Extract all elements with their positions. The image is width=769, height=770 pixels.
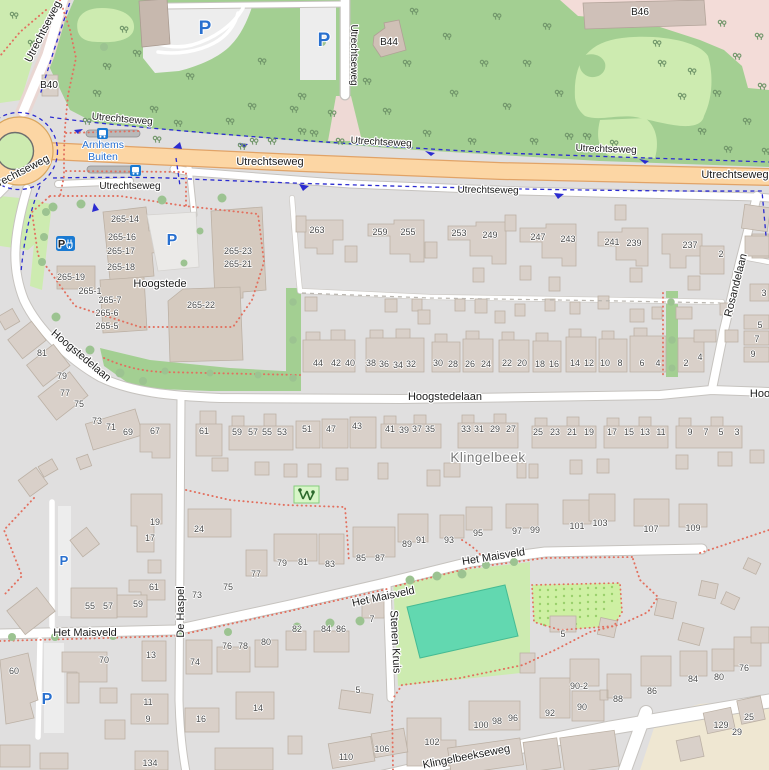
svg-text:253: 253 (451, 228, 466, 238)
svg-text:249: 249 (482, 230, 497, 240)
svg-text:103: 103 (592, 518, 607, 528)
svg-text:99: 99 (530, 525, 540, 535)
svg-text:Buiten: Buiten (88, 151, 118, 163)
svg-text:15: 15 (624, 427, 634, 437)
svg-text:Arnhems: Arnhems (82, 139, 124, 151)
svg-text:77: 77 (60, 388, 70, 398)
svg-text:95: 95 (473, 528, 483, 538)
svg-text:265-22: 265-22 (187, 300, 215, 310)
svg-text:13: 13 (640, 427, 650, 437)
svg-text:265-6: 265-6 (95, 308, 118, 318)
svg-text:7: 7 (754, 334, 759, 344)
svg-text:26: 26 (465, 359, 475, 369)
svg-text:2: 2 (683, 358, 688, 368)
svg-text:38: 38 (366, 358, 376, 368)
svg-text:102: 102 (424, 737, 439, 747)
svg-text:71: 71 (106, 422, 116, 432)
svg-text:60: 60 (9, 666, 19, 676)
svg-text:101: 101 (569, 521, 584, 531)
svg-text:92: 92 (545, 708, 555, 718)
svg-text:42: 42 (331, 358, 341, 368)
svg-text:59: 59 (232, 427, 242, 437)
svg-text:24: 24 (194, 524, 204, 534)
svg-text:89: 89 (402, 539, 412, 549)
svg-text:43: 43 (352, 421, 362, 431)
svg-text:12: 12 (584, 358, 594, 368)
svg-text:5: 5 (718, 427, 723, 437)
svg-text:8: 8 (617, 358, 622, 368)
svg-text:51: 51 (302, 424, 312, 434)
svg-text:129: 129 (713, 720, 728, 730)
svg-text:31: 31 (474, 424, 484, 434)
svg-text:90-2: 90-2 (570, 681, 588, 691)
svg-text:97: 97 (512, 526, 522, 536)
svg-text:5: 5 (757, 320, 762, 330)
svg-text:4: 4 (655, 358, 660, 368)
svg-text:109: 109 (685, 523, 700, 533)
svg-text:59: 59 (133, 599, 143, 609)
svg-text:263: 263 (309, 225, 324, 235)
svg-text:265-23: 265-23 (224, 246, 252, 256)
svg-text:30: 30 (433, 358, 443, 368)
svg-text:7: 7 (703, 427, 708, 437)
svg-text:Utrechtseweg: Utrechtseweg (701, 169, 768, 181)
svg-text:75: 75 (223, 582, 233, 592)
svg-text:35: 35 (425, 424, 435, 434)
svg-text:81: 81 (298, 557, 308, 567)
svg-text:24: 24 (481, 359, 491, 369)
svg-text:85: 85 (356, 553, 366, 563)
svg-text:41: 41 (385, 424, 395, 434)
svg-text:P: P (60, 553, 69, 568)
svg-text:32: 32 (406, 359, 416, 369)
svg-text:83: 83 (325, 559, 335, 569)
svg-text:4: 4 (697, 352, 702, 362)
svg-text:237: 237 (682, 240, 697, 250)
svg-text:10: 10 (600, 358, 610, 368)
svg-text:Utrechtseweg: Utrechtseweg (348, 24, 359, 85)
svg-text:93: 93 (444, 535, 454, 545)
svg-text:98: 98 (492, 716, 502, 726)
svg-text:91: 91 (416, 535, 426, 545)
svg-text:40: 40 (345, 358, 355, 368)
svg-text:76: 76 (739, 663, 749, 673)
svg-text:239: 239 (626, 238, 641, 248)
svg-text:29: 29 (490, 424, 500, 434)
svg-text:73: 73 (92, 416, 102, 426)
svg-text:74: 74 (190, 657, 200, 667)
svg-text:9: 9 (687, 427, 692, 437)
svg-text:39: 39 (399, 425, 409, 435)
svg-text:Het Maisveld: Het Maisveld (53, 627, 117, 639)
svg-text:67: 67 (150, 426, 160, 436)
svg-text:P: P (58, 239, 65, 251)
svg-text:11: 11 (143, 697, 152, 707)
svg-text:75: 75 (74, 399, 84, 409)
svg-text:16: 16 (196, 714, 206, 724)
svg-text:Utrechtseweg: Utrechtseweg (99, 181, 160, 192)
svg-text:90: 90 (577, 702, 587, 712)
svg-text:55: 55 (262, 427, 272, 437)
svg-text:81: 81 (37, 348, 47, 358)
svg-text:Utrechtseweg: Utrechtseweg (236, 156, 303, 168)
svg-text:255: 255 (400, 227, 415, 237)
svg-text:84: 84 (321, 624, 331, 634)
svg-text:14: 14 (570, 358, 580, 368)
svg-text:5: 5 (560, 629, 565, 639)
svg-text:Utrechtseweg: Utrechtseweg (575, 143, 636, 156)
svg-text:13: 13 (146, 650, 156, 660)
svg-text:96: 96 (508, 713, 518, 723)
svg-text:84: 84 (688, 674, 698, 684)
svg-text:5: 5 (355, 685, 360, 695)
svg-text:17: 17 (145, 533, 155, 543)
svg-text:22: 22 (502, 358, 512, 368)
svg-text:79: 79 (277, 558, 287, 568)
svg-text:110: 110 (339, 752, 353, 762)
svg-text:9: 9 (145, 714, 150, 724)
svg-text:28: 28 (448, 359, 458, 369)
svg-text:18: 18 (535, 359, 545, 369)
svg-text:265-5: 265-5 (95, 321, 118, 331)
svg-text:20: 20 (517, 358, 527, 368)
svg-text:265-14: 265-14 (111, 214, 139, 224)
svg-text:61: 61 (149, 582, 159, 592)
svg-text:6: 6 (639, 358, 644, 368)
svg-text:17: 17 (607, 427, 617, 437)
svg-text:27: 27 (506, 424, 516, 434)
svg-text:265-16: 265-16 (108, 232, 136, 242)
svg-text:57: 57 (103, 601, 113, 611)
svg-text:76: 76 (222, 641, 232, 651)
svg-text:86: 86 (336, 624, 346, 634)
svg-text:265-17: 265-17 (107, 246, 135, 256)
svg-text:P: P (42, 691, 53, 708)
svg-text:B40: B40 (40, 80, 58, 91)
svg-text:19: 19 (150, 517, 160, 527)
svg-text:243: 243 (560, 234, 575, 244)
svg-text:73: 73 (192, 590, 202, 600)
svg-text:70: 70 (99, 655, 109, 665)
svg-text:265-19: 265-19 (57, 272, 85, 282)
svg-text:16: 16 (549, 359, 559, 369)
svg-text:79: 79 (57, 371, 67, 381)
svg-text:P: P (318, 30, 331, 51)
svg-text:21: 21 (567, 427, 577, 437)
svg-text:107: 107 (643, 524, 658, 534)
svg-text:57: 57 (248, 427, 258, 437)
svg-text:B44: B44 (380, 37, 398, 48)
svg-text:53: 53 (277, 427, 287, 437)
svg-text:259: 259 (372, 227, 387, 237)
svg-text:265-18: 265-18 (107, 262, 135, 272)
svg-text:Utrechtseweg: Utrechtseweg (457, 184, 518, 196)
svg-text:80: 80 (714, 672, 724, 682)
svg-text:P: P (167, 232, 178, 249)
svg-text:Hoogstedelaan: Hoogstedelaan (408, 391, 482, 403)
svg-text:241: 241 (604, 237, 619, 247)
svg-text:265-7: 265-7 (98, 295, 121, 305)
svg-text:P: P (199, 18, 212, 39)
svg-text:36: 36 (379, 359, 389, 369)
svg-text:106: 106 (374, 744, 389, 754)
svg-text:3: 3 (761, 288, 766, 298)
svg-text:61: 61 (199, 426, 209, 436)
svg-text:100: 100 (473, 720, 488, 730)
svg-text:44: 44 (313, 358, 323, 368)
svg-text:69: 69 (123, 427, 133, 437)
svg-text:77: 77 (251, 569, 261, 579)
svg-text:11: 11 (656, 427, 665, 437)
svg-text:80: 80 (261, 637, 271, 647)
svg-text:87: 87 (375, 553, 385, 563)
svg-text:2: 2 (718, 249, 723, 259)
svg-text:37: 37 (412, 424, 422, 434)
svg-text:25: 25 (533, 427, 543, 437)
svg-text:7: 7 (369, 614, 374, 624)
svg-text:14: 14 (253, 703, 263, 713)
svg-text:De Haspel: De Haspel (175, 586, 187, 637)
svg-text:3: 3 (734, 427, 739, 437)
svg-text:Klingelbeek: Klingelbeek (450, 450, 525, 465)
svg-text:25: 25 (744, 712, 754, 722)
svg-text:B46: B46 (631, 7, 649, 18)
svg-text:Hoo: Hoo (750, 388, 769, 400)
svg-text:33: 33 (461, 424, 471, 434)
svg-text:82: 82 (292, 624, 302, 634)
svg-text:19: 19 (584, 427, 594, 437)
svg-text:78: 78 (238, 641, 248, 651)
svg-text:Hoogstede: Hoogstede (133, 278, 186, 290)
svg-text:55: 55 (85, 601, 95, 611)
svg-text:23: 23 (550, 427, 560, 437)
svg-text:9: 9 (750, 349, 755, 359)
svg-text:47: 47 (326, 424, 336, 434)
svg-text:134: 134 (142, 758, 157, 768)
svg-text:34: 34 (393, 360, 403, 370)
svg-text:86: 86 (647, 686, 657, 696)
svg-text:247: 247 (530, 232, 545, 242)
svg-text:29: 29 (732, 727, 742, 737)
svg-text:88: 88 (613, 694, 623, 704)
svg-text:265-21: 265-21 (224, 259, 252, 269)
